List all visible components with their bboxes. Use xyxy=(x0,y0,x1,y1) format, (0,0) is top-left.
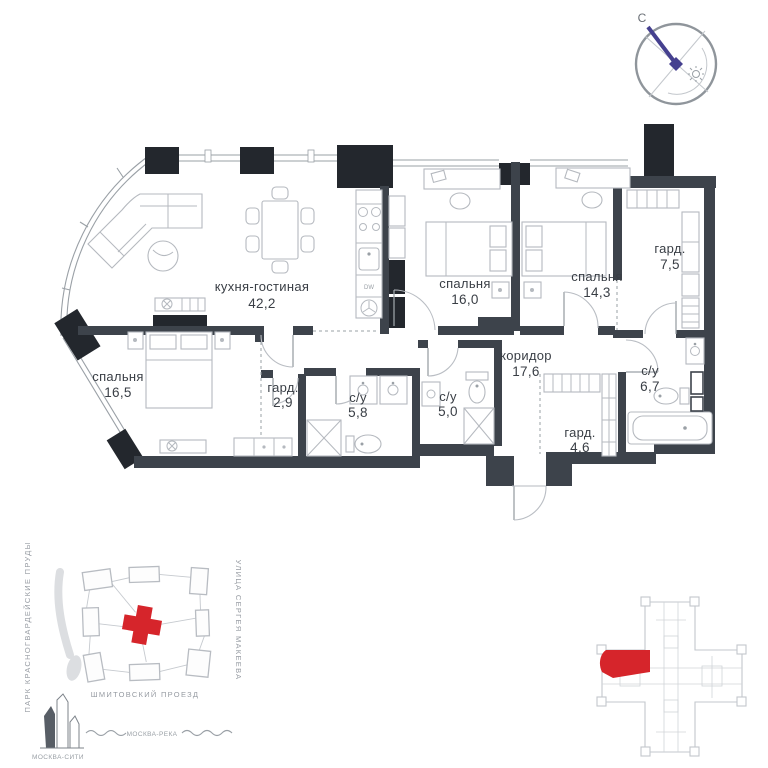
dishwasher-label: DW xyxy=(364,285,374,291)
compass-north-label: С xyxy=(638,11,647,25)
room-area-bedroom-2: 14,3 xyxy=(583,285,610,300)
room-label-bathroom-3: с/у xyxy=(641,363,659,378)
room-label-wardrobe-3: гард. xyxy=(564,425,595,440)
room-area-bedroom-3: 16,5 xyxy=(104,385,131,400)
room-label-bathroom-2: с/у xyxy=(439,389,457,404)
park-label: ПАРК КРАСНОГВАРДЕЙСКИЕ ПРУДЫ xyxy=(23,541,32,712)
site-highlight-cross xyxy=(120,603,164,647)
room-area-bedroom-1: 16,0 xyxy=(451,292,478,307)
room-area-wardrobe-2: 2,9 xyxy=(273,395,293,410)
room-label-kitchen-living: кухня-гостиная xyxy=(215,279,309,294)
room-label-bedroom-2: спальня xyxy=(571,269,622,284)
room-area-bathroom-3: 6,7 xyxy=(640,379,660,394)
building-section xyxy=(597,597,746,756)
room-area-bathroom-2: 5,0 xyxy=(438,404,458,419)
room-area-wardrobe-3: 4,6 xyxy=(570,440,590,455)
moscow-city-icon xyxy=(40,694,84,748)
dining-table-icon xyxy=(246,187,314,273)
kitchen-counter-icon xyxy=(356,190,382,318)
floorplan-page: DW xyxy=(0,0,768,768)
floorplan-svg: DW xyxy=(0,0,768,768)
compass-needle-icon xyxy=(648,27,683,71)
room-label-wardrobe-2: гард. xyxy=(267,380,298,395)
compass: С xyxy=(636,11,716,104)
sun-icon xyxy=(688,66,704,82)
bathroom2-fixtures xyxy=(422,372,494,444)
street-bottom-label: ШМИТОВСКИЙ ПРОЕЗД xyxy=(91,690,200,699)
sofa-icon xyxy=(88,194,202,268)
coffee-table-icon xyxy=(148,241,178,271)
river-label: МОСКВА-РЕКА xyxy=(127,731,178,738)
room-area-wardrobe-1: 7,5 xyxy=(660,257,680,272)
room-area-corridor: 17,6 xyxy=(512,364,539,379)
room-area-bathroom-1: 5,8 xyxy=(348,405,368,420)
room-label-bedroom-1: спальня xyxy=(439,276,490,291)
room-area-kitchen-living: 42,2 xyxy=(248,296,275,311)
moscow-city-label: МОСКВА-СИТИ xyxy=(32,754,84,761)
street-right-label: УЛИЦА СЕРГЕЯ МАКЕЕВА xyxy=(234,560,243,681)
room-label-bedroom-3: спальня xyxy=(92,369,143,384)
site-map: ПАРК КРАСНОГВАРДЕЙСКИЕ ПРУДЫ УЛИЦА СЕРГЕ… xyxy=(23,541,243,712)
room-label-bathroom-1: с/у xyxy=(349,390,367,405)
room-label-wardrobe-1: гард. xyxy=(654,241,685,256)
room-label-corridor: коридор xyxy=(500,348,552,363)
